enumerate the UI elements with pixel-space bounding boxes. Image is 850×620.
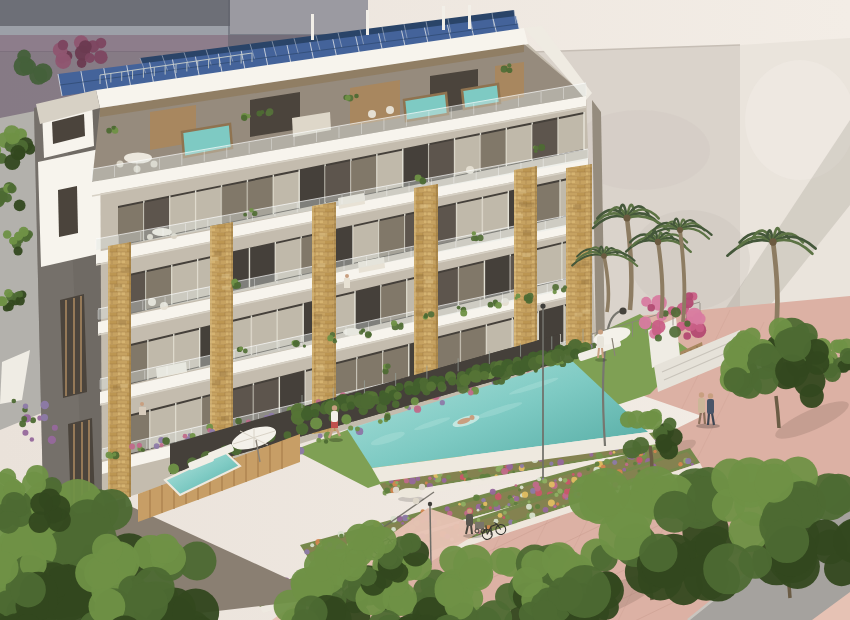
swimmer-head <box>470 415 475 420</box>
stone-pillar <box>414 184 438 402</box>
person-legs <box>598 348 599 358</box>
roof-divider-post <box>468 5 471 29</box>
person-body <box>344 278 350 288</box>
chair <box>413 498 419 504</box>
side-box-window <box>58 186 78 237</box>
person-legs <box>708 413 709 425</box>
person-head <box>699 392 704 397</box>
background-building-mid <box>230 0 368 34</box>
person-body <box>466 514 473 526</box>
person-head <box>598 330 603 335</box>
person-head <box>467 509 472 514</box>
shadow <box>463 534 483 538</box>
lamp-head <box>428 502 432 506</box>
person-body <box>331 411 338 422</box>
person-legs <box>704 412 705 424</box>
round-table <box>398 488 422 498</box>
lamp-head <box>540 303 545 308</box>
shadow <box>595 358 607 362</box>
roof-divider-post <box>311 14 314 40</box>
render-image: Aerial 3D render of a new-build apartmen… <box>0 0 850 620</box>
chair <box>419 484 425 490</box>
stone-pillar <box>108 242 131 500</box>
person-head <box>140 402 144 406</box>
person-body <box>597 336 604 348</box>
roof-divider-post <box>442 6 445 30</box>
person-legs <box>471 525 472 534</box>
shadow <box>329 438 343 442</box>
person-body <box>707 399 714 414</box>
person-head <box>345 274 349 278</box>
person-body <box>139 407 146 415</box>
lamp-head <box>619 307 626 314</box>
roof-divider-post <box>366 10 369 35</box>
stone-pillar <box>514 166 537 370</box>
terrace-chair <box>386 106 394 114</box>
lamp-pole <box>430 506 431 565</box>
person-legs <box>602 348 603 358</box>
cart <box>475 522 484 529</box>
terrace-chair <box>368 110 376 118</box>
tree <box>75 534 219 620</box>
person-head <box>332 405 337 410</box>
person-shorts <box>331 421 338 428</box>
person-head <box>708 393 713 398</box>
chair <box>393 487 399 493</box>
person-body <box>698 398 705 413</box>
